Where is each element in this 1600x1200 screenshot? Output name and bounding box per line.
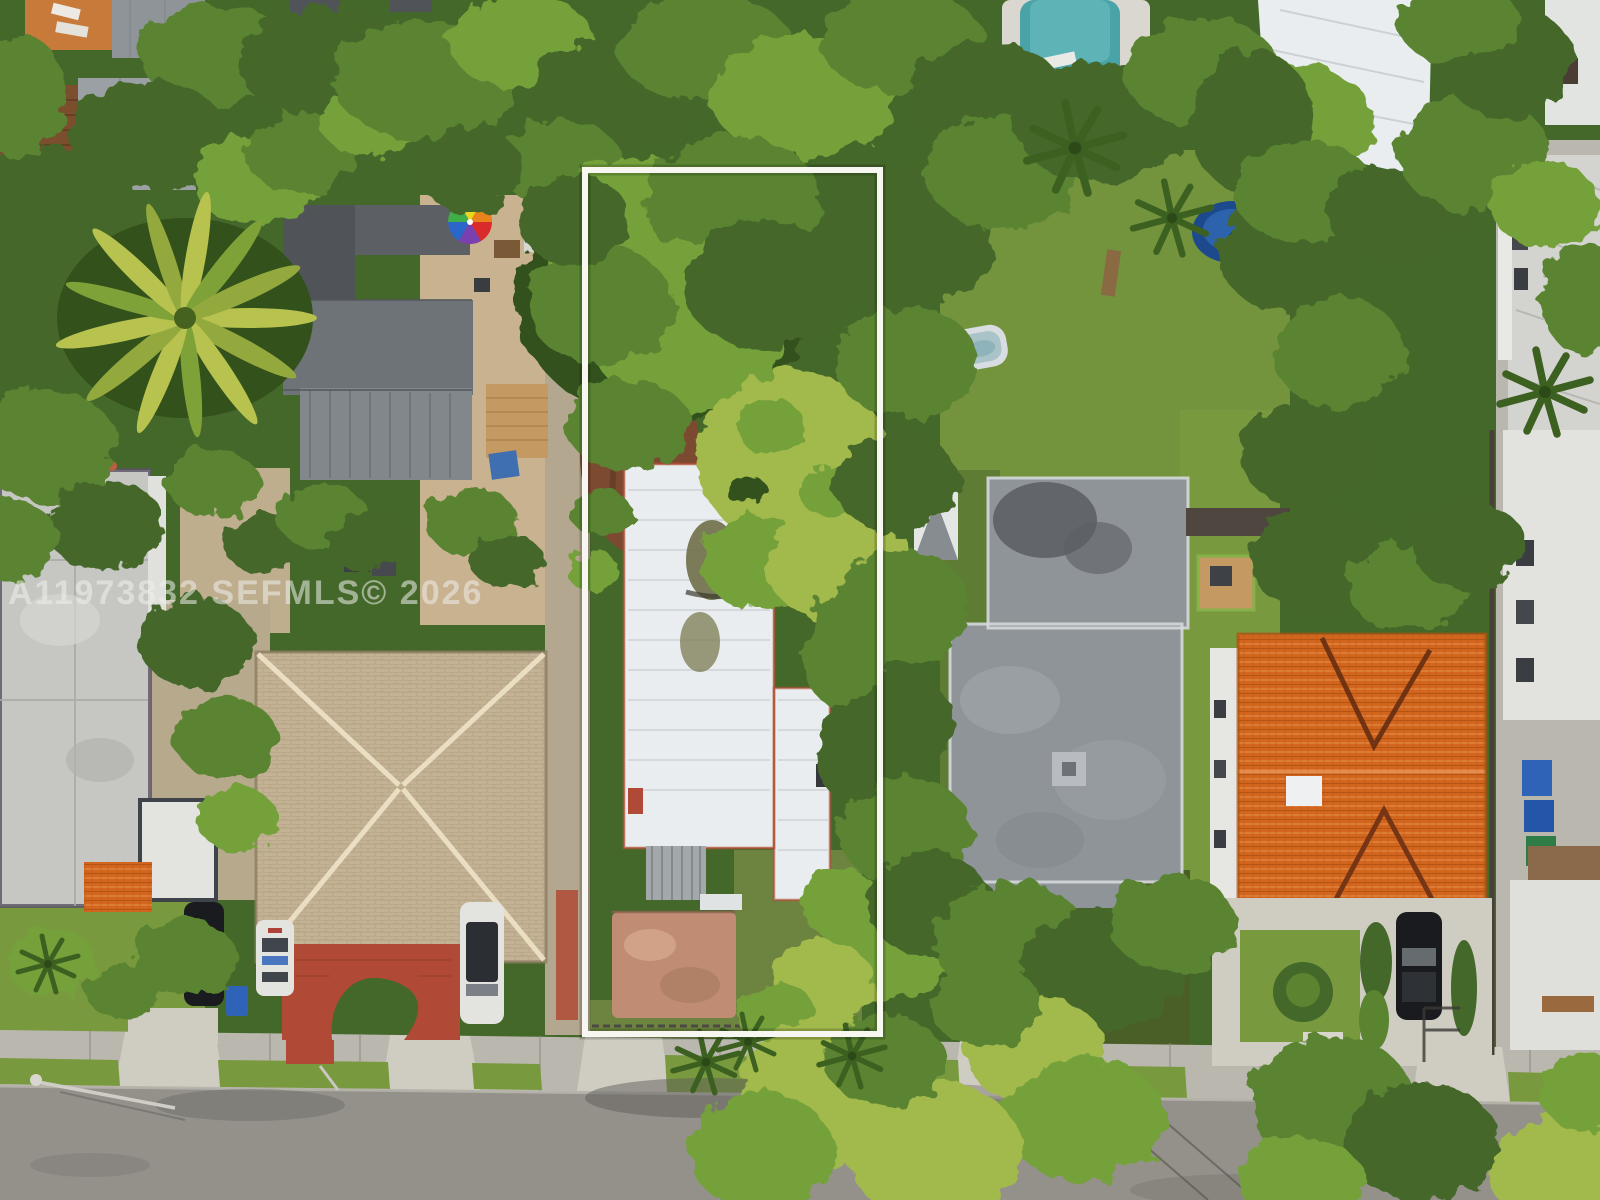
deck-strip	[1542, 996, 1594, 1012]
black-sedan	[1396, 912, 1442, 1020]
white-suv	[460, 902, 504, 1024]
blue-recycle-bin	[226, 986, 248, 1016]
patio-table	[494, 240, 520, 258]
blue-tarp	[488, 450, 519, 480]
chimney	[628, 788, 643, 814]
concrete-patio	[612, 912, 736, 1018]
mls-watermark: A11973832 SEFMLS© 2026	[8, 574, 483, 612]
dark-flat-roof-house	[283, 205, 473, 480]
roof-hatch	[1286, 776, 1322, 806]
corrugated-section	[646, 846, 706, 900]
wood-deck	[486, 384, 548, 458]
aerial-photo: A11973832 SEFMLS© 2026	[0, 0, 1600, 1200]
orange-tile-roof-house	[1210, 634, 1492, 1066]
window	[1516, 658, 1534, 682]
brown-path	[1528, 846, 1600, 880]
deck-chair	[1210, 566, 1232, 586]
window	[1514, 268, 1528, 290]
blue-bin	[1522, 760, 1552, 796]
roof-stain	[680, 612, 720, 672]
window	[1516, 600, 1534, 624]
blue-bin	[1524, 800, 1554, 832]
hedge	[1451, 940, 1477, 1036]
red-tile-accent	[84, 862, 152, 912]
hedge	[1360, 922, 1392, 1002]
porch-step	[700, 894, 742, 910]
police-car	[256, 920, 294, 996]
driveway-apron	[382, 1035, 480, 1090]
